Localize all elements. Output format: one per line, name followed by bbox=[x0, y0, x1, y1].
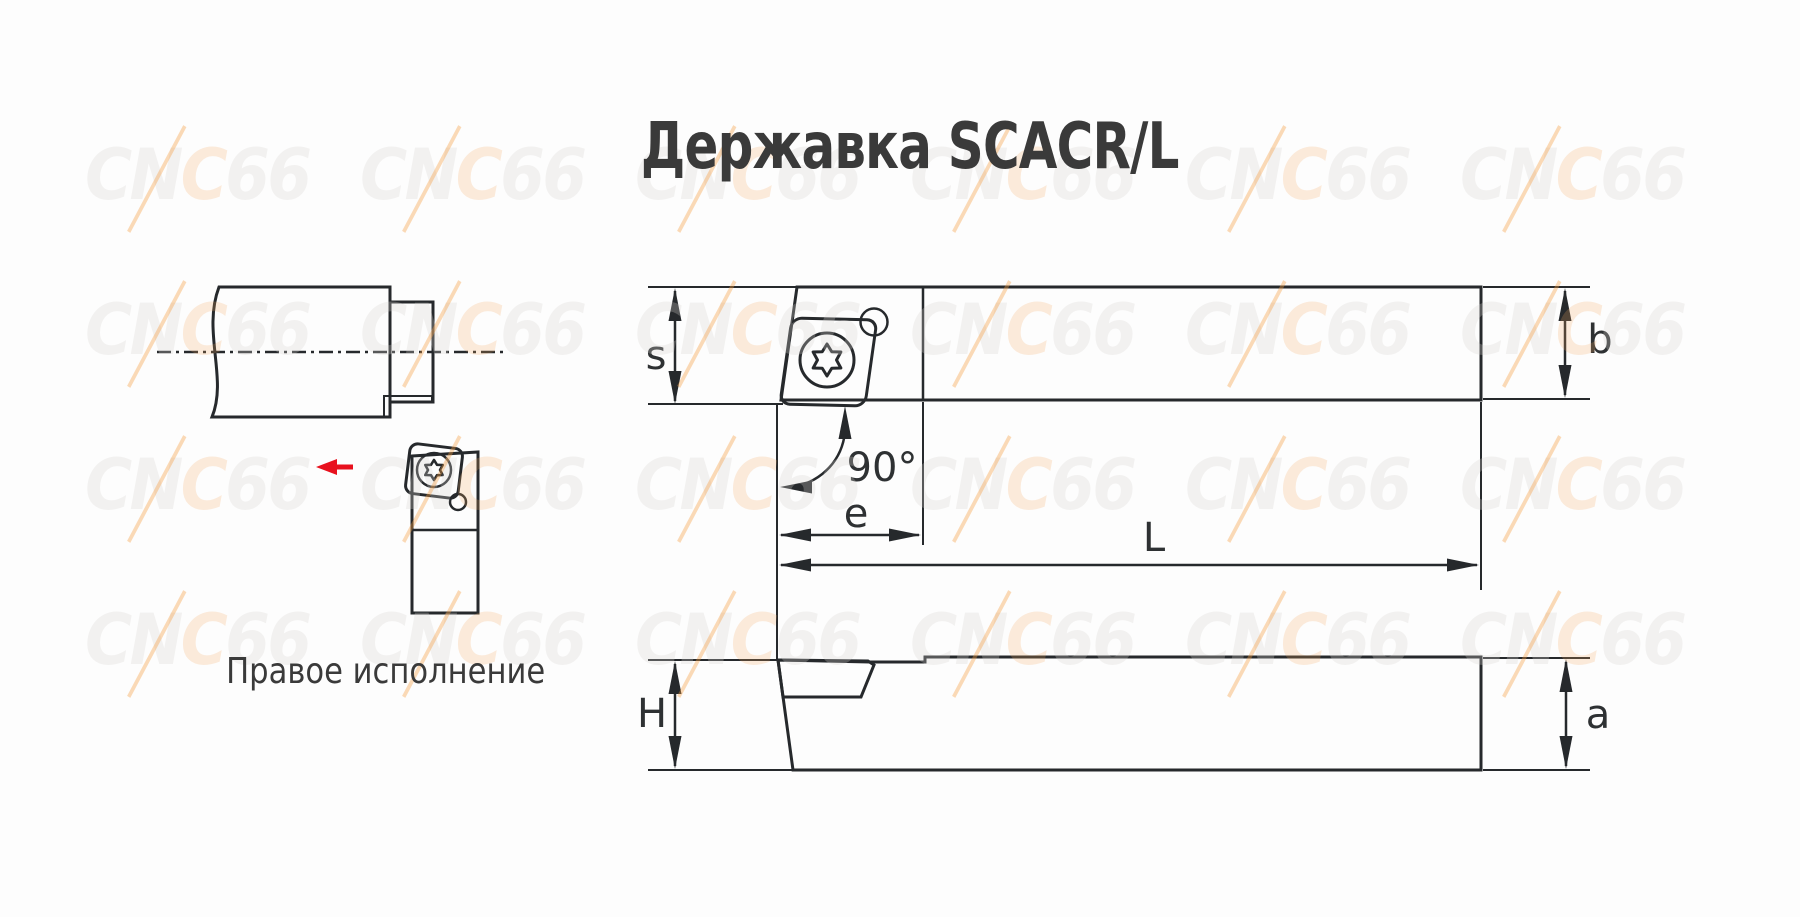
holder-side-view: H a bbox=[637, 657, 1610, 770]
svg-text:b: b bbox=[1587, 317, 1612, 363]
torx-star-icon bbox=[425, 460, 442, 480]
shank-top-view-body bbox=[781, 287, 1481, 400]
page-title: Державка SCACR/L bbox=[0, 115, 1800, 179]
torx-screw-pictorial bbox=[417, 453, 451, 487]
svg-text:L: L bbox=[1143, 515, 1166, 561]
dimension-b: b bbox=[1483, 287, 1613, 399]
feed-direction-arrow-icon bbox=[316, 459, 353, 475]
svg-text:H: H bbox=[637, 691, 667, 737]
svg-text:s: s bbox=[646, 333, 667, 379]
holder-top-view: s 90° e L bbox=[646, 287, 1613, 659]
shank-side-view-body bbox=[778, 657, 1481, 770]
svg-text:a: a bbox=[1586, 692, 1611, 738]
dimension-s: s bbox=[646, 288, 682, 404]
dimension-angle-90: 90° bbox=[780, 406, 917, 494]
hand-version-caption: Правое исполнение bbox=[186, 652, 586, 692]
dimension-a: a bbox=[1483, 658, 1610, 770]
toolholder-pictorial bbox=[405, 443, 478, 613]
svg-text:e: e bbox=[844, 491, 869, 537]
turning-illustration bbox=[157, 287, 508, 613]
svg-text:90°: 90° bbox=[847, 445, 918, 491]
dimension-L: L bbox=[777, 402, 1481, 659]
dimension-H: H bbox=[637, 661, 682, 769]
cutting-insert-top-view bbox=[780, 318, 877, 406]
toolholder-body bbox=[412, 452, 478, 613]
torx-star-icon bbox=[813, 344, 841, 376]
torx-screw-top-view bbox=[800, 333, 854, 387]
cutting-insert-side-view bbox=[778, 660, 874, 697]
